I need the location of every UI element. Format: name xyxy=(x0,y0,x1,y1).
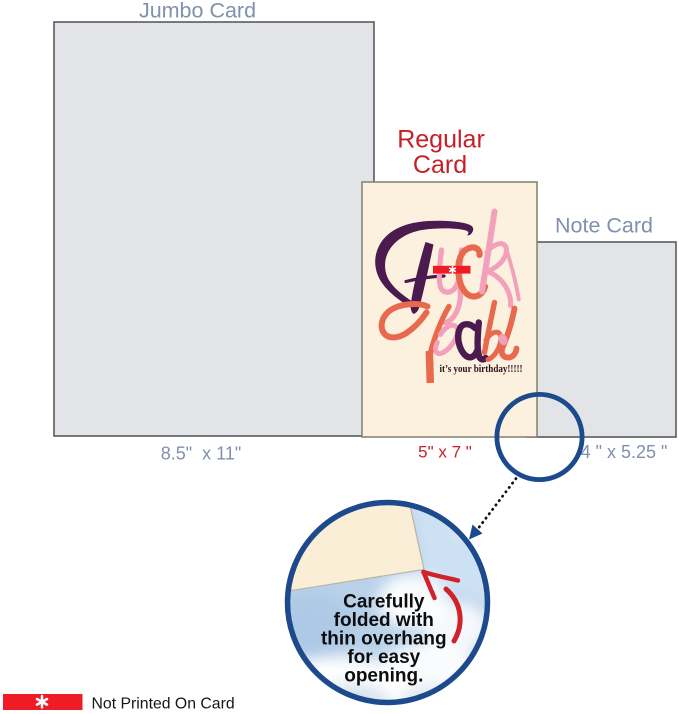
svg-text:Not Printed On Card: Not Printed On Card xyxy=(92,696,235,713)
svg-text:8.5" x 11": 8.5" x 11" xyxy=(161,444,242,464)
svg-text:it’s your birthday!!!!!: it’s your birthday!!!!! xyxy=(440,363,523,375)
svg-text:4 " x 5.25 ": 4 " x 5.25 " xyxy=(581,442,668,462)
svg-text:5" x 7 ": 5" x 7 " xyxy=(418,443,472,462)
svg-text:Note Card: Note Card xyxy=(555,214,653,238)
svg-text:Regular: Regular xyxy=(397,126,485,154)
svg-text:Jumbo Card: Jumbo Card xyxy=(139,0,256,23)
svg-text:Card: Card xyxy=(413,151,467,179)
svg-text:opening.: opening. xyxy=(344,665,423,686)
